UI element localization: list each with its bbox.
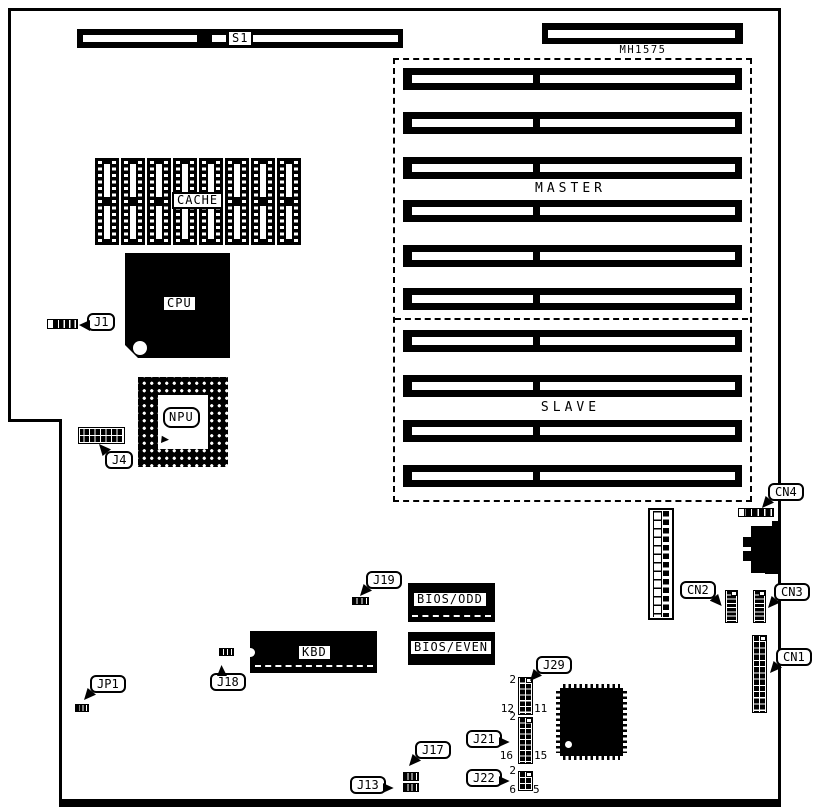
slot-stripe (412, 164, 533, 172)
chip-pins (112, 161, 116, 242)
callout-arrow-icon (499, 737, 510, 747)
callout-arrow-icon (360, 584, 372, 596)
board-edge-step-h (8, 419, 62, 422)
jumper-pin1 (739, 509, 745, 516)
slot-stripe (412, 337, 533, 345)
slot-stripe (540, 427, 735, 435)
cpu-pin1-dot (133, 341, 147, 355)
slot-stripe (540, 252, 735, 260)
slot-stripe (412, 472, 533, 480)
slot-stripe (412, 427, 533, 435)
slot-stripe (412, 119, 533, 127)
j21-header (518, 717, 533, 764)
din-connector-body (751, 526, 780, 573)
din-connector-tab (743, 537, 752, 547)
j19-jumper (352, 597, 369, 605)
chip-pins (164, 161, 168, 242)
header-pin1 (759, 591, 765, 596)
slot-stripe (412, 295, 533, 303)
j18-jumper (219, 648, 234, 656)
bus-slot (403, 112, 742, 134)
slot-stripe (412, 207, 533, 215)
connector-pins (663, 511, 669, 617)
header-pin1 (526, 718, 532, 723)
j29-callout-label: J29 (543, 658, 565, 672)
slot-stripe (412, 252, 533, 260)
callout-arrow-icon (383, 783, 394, 793)
chip-pins (242, 161, 246, 242)
j19-callout-label: J19 (373, 573, 395, 587)
chip-slot (234, 164, 240, 197)
j21-pin-top: 2 (502, 711, 516, 722)
chip-slot (286, 206, 292, 239)
j1-callout: J1 (87, 313, 115, 331)
board-edge-step-v (59, 419, 62, 805)
chip-slot (286, 164, 292, 197)
j22-pin-br: 5 (533, 784, 540, 795)
bus-slot (403, 420, 742, 442)
din-connector-tab (743, 551, 752, 561)
cn4-jumper (738, 508, 774, 517)
header-pin1 (760, 636, 766, 641)
cn3-header (753, 590, 766, 623)
j19-callout: J19 (366, 571, 402, 589)
slot-stripe (540, 295, 735, 303)
chip-pins (124, 161, 128, 242)
cn2-header (725, 590, 738, 623)
j22-pin-top: 2 (504, 765, 516, 776)
qfp-pins-left (556, 691, 560, 753)
slot-stripe (412, 75, 533, 83)
j29-callout: J29 (536, 656, 572, 674)
s1-stripe (83, 35, 197, 42)
callout-arrow-icon (710, 594, 722, 606)
bus-slot (403, 68, 742, 90)
slot-stripe (540, 75, 735, 83)
cache-chip (251, 158, 275, 245)
cpu-label: CPU (162, 295, 197, 312)
motherboard-diagram: S1 MH1575 MASTER SLAVE CACHE CPU NPU J1 … (0, 0, 813, 812)
bus-slot (403, 245, 742, 267)
chip-pins (280, 161, 284, 242)
j29-header (518, 677, 533, 715)
chip-pins (138, 161, 142, 242)
j4-jumper-block (78, 427, 125, 444)
j13-callout: J13 (350, 776, 386, 794)
board-edge-bottom (59, 799, 781, 807)
din-connector-step (772, 521, 780, 527)
callout-arrow-icon (79, 320, 90, 331)
cache-chip (121, 158, 145, 245)
slot-stripe (540, 472, 735, 480)
chip-slot (104, 206, 110, 239)
j21-callout-label: J21 (473, 732, 495, 746)
bios-odd-dashes (412, 615, 491, 617)
j1-callout-label: J1 (94, 315, 108, 329)
cache-chip (147, 158, 171, 245)
chip-pins (228, 161, 232, 242)
jp1-callout: JP1 (90, 675, 126, 693)
chip-pins (150, 161, 154, 242)
chip-pins (254, 161, 258, 242)
slot-stripe (540, 164, 735, 172)
cache-chip (95, 158, 119, 245)
s1-stripe (253, 35, 398, 42)
callout-arrow-icon (409, 754, 421, 766)
master-section-label: MASTER (518, 181, 623, 196)
chip-slot (156, 206, 162, 239)
board-edge-right (778, 8, 781, 807)
header-pin1 (731, 591, 737, 596)
chip-slot (208, 206, 214, 239)
j17-callout-label: J17 (422, 743, 444, 757)
cn1-header (752, 635, 767, 713)
header-pin1 (526, 772, 532, 777)
cache-label: CACHE (172, 192, 223, 209)
callout-arrow-icon (530, 669, 542, 681)
qfp-pin1-dot (565, 741, 572, 748)
kbd-chip-notch (246, 648, 255, 657)
j17-jumper (403, 772, 419, 781)
chip-slot (260, 206, 266, 239)
chip-slot (156, 164, 162, 197)
j22-callout-label: J22 (473, 771, 495, 785)
cn2-callout-label: CN2 (687, 583, 709, 597)
mh1575-stripe (548, 30, 735, 38)
bios-odd-label: BIOS/ODD (412, 591, 488, 608)
kbd-chip-dashes (255, 665, 373, 667)
j22-callout: J22 (466, 769, 502, 787)
header-pins (520, 678, 525, 714)
cn1-callout-label: CN1 (783, 650, 805, 664)
cache-chip (277, 158, 301, 245)
j13-jumper (403, 783, 419, 792)
j22-header (518, 771, 533, 791)
slot-stripe (540, 207, 735, 215)
cn4-callout-label: CN4 (775, 485, 797, 499)
bus-slot (403, 330, 742, 352)
bus-slot (403, 375, 742, 397)
s1-label: S1 (227, 30, 253, 47)
j29-pin-br: 11 (534, 703, 547, 714)
chip-slot (234, 206, 240, 239)
chip-pins (268, 161, 272, 242)
chip-slot (130, 164, 136, 197)
din-connector-step (765, 568, 780, 574)
jp1-jumper (75, 704, 89, 712)
chip-pins (294, 161, 298, 242)
s1-stripe (212, 35, 226, 42)
cache-chip (225, 158, 249, 245)
slot-stripe (540, 382, 735, 390)
slot-stripe (540, 337, 735, 345)
callout-arrow-icon (99, 444, 111, 456)
bios-even-label: BIOS/EVEN (409, 639, 493, 656)
header-pins (520, 718, 525, 763)
npu-label: NPU (163, 407, 200, 428)
bus-slot (403, 157, 742, 179)
cn2-callout: CN2 (680, 581, 716, 599)
cn3-callout: CN3 (774, 583, 810, 601)
j1-jumper (47, 319, 78, 329)
chip-slot (260, 164, 266, 197)
chip-slot (104, 164, 110, 197)
j18-callout-label: J18 (217, 675, 239, 689)
chip-slot (182, 206, 188, 239)
j21-pin-br: 15 (534, 750, 547, 761)
chip-slot (130, 206, 136, 239)
slot-stripe (540, 119, 735, 127)
j4-callout-label: J4 (112, 453, 126, 467)
mh1575-label: MH1575 (603, 44, 683, 56)
cn4-callout: CN4 (768, 483, 804, 501)
board-edge-top (8, 8, 781, 11)
kbd-label: KBD (297, 644, 332, 661)
j21-callout: J21 (466, 730, 502, 748)
board-edge-left (8, 8, 11, 422)
callout-arrow-icon (84, 688, 96, 700)
qfp-pins-bottom (563, 756, 620, 760)
j21-pin-bl: 16 (493, 750, 513, 761)
connector-sockets (653, 511, 662, 617)
header-pins (526, 678, 531, 714)
j18-callout: J18 (210, 673, 246, 691)
cn1-callout: CN1 (776, 648, 812, 666)
header-pins (526, 718, 531, 763)
header-pins (760, 636, 765, 712)
header-pins (754, 636, 759, 712)
j4-callout: J4 (105, 451, 133, 469)
jp1-callout-label: JP1 (97, 677, 119, 691)
j17-callout: J17 (415, 741, 451, 759)
callout-arrow-icon (217, 665, 227, 676)
bus-slot (403, 288, 742, 310)
cn3-callout-label: CN3 (781, 585, 803, 599)
qfp-pins-right (623, 691, 627, 753)
bus-group-divider (395, 318, 748, 320)
callout-arrow-icon (762, 496, 774, 508)
slot-stripe (412, 382, 533, 390)
j29-pin-top: 2 (502, 674, 516, 685)
header-pins (520, 772, 525, 790)
bus-slot (403, 465, 742, 487)
power-connector (648, 508, 674, 620)
jumper-pin1 (48, 320, 54, 328)
j13-callout-label: J13 (357, 778, 379, 792)
slave-section-label: SLAVE (518, 400, 623, 415)
bus-slot (403, 200, 742, 222)
j22-pin-bl: 6 (504, 784, 516, 795)
chip-pins (98, 161, 102, 242)
qfp-pins-top (563, 684, 620, 688)
